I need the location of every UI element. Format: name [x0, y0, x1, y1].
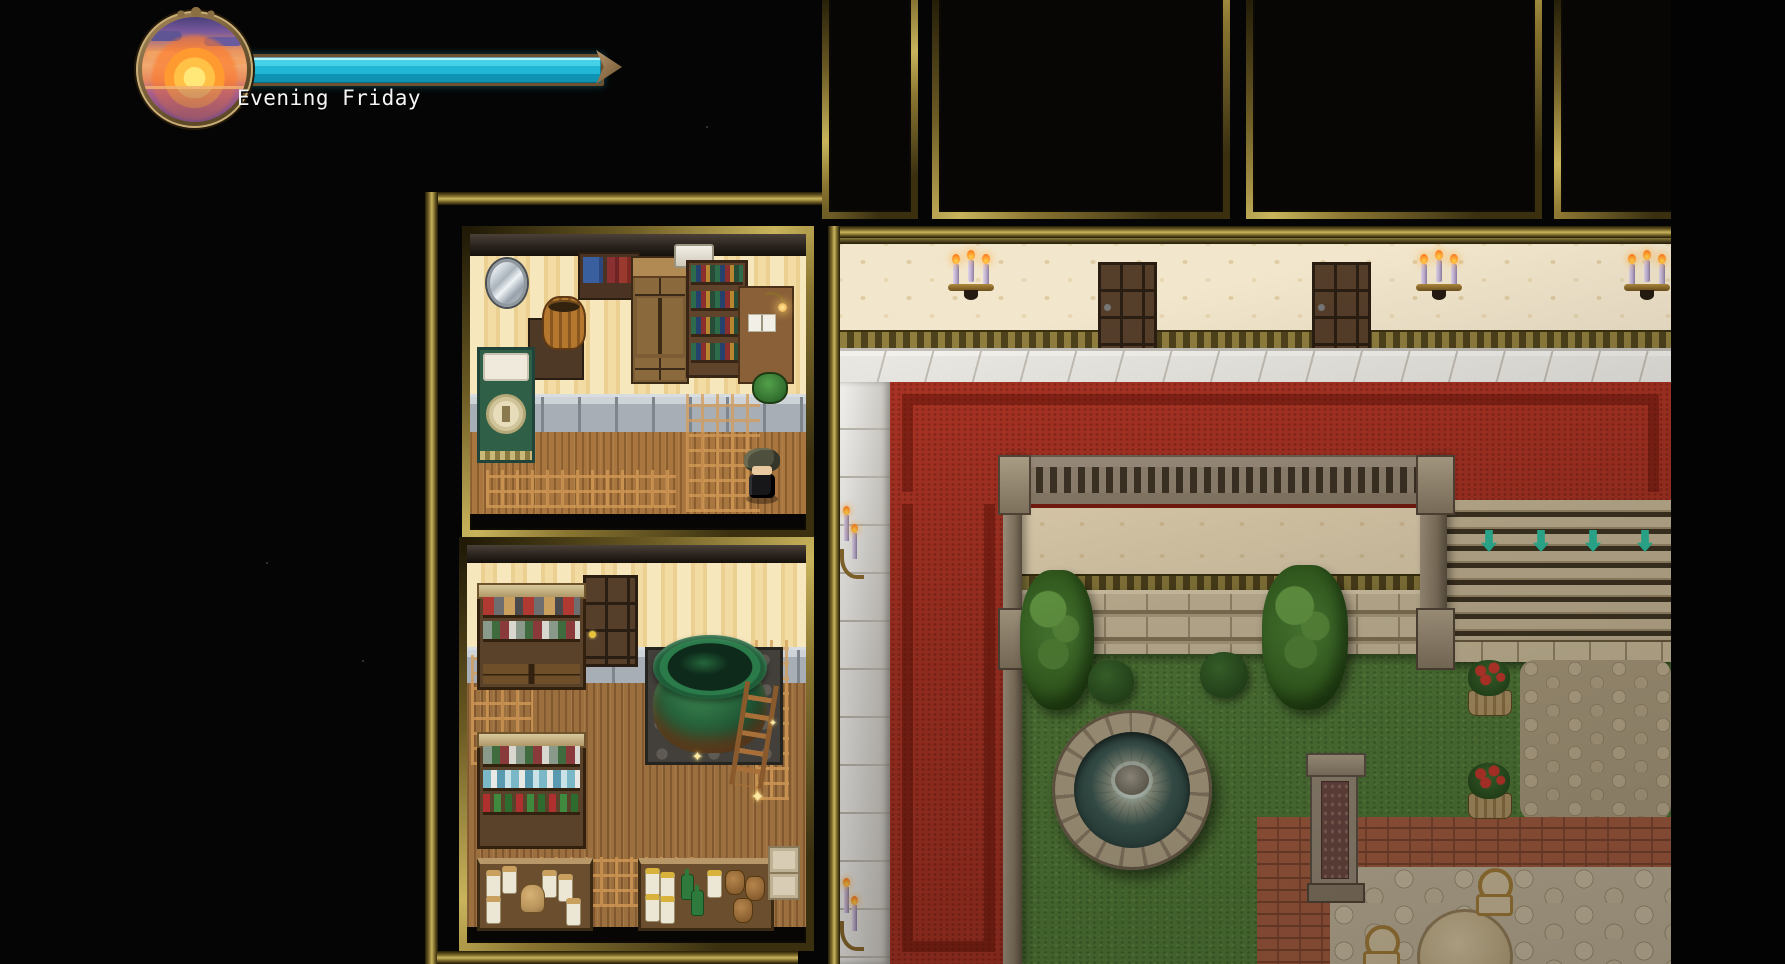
small-bush-1: [1088, 660, 1134, 704]
bedroom-rug-pattern: [486, 470, 676, 508]
left-column-wall: [1003, 455, 1022, 964]
sconce-drop: [1640, 290, 1654, 300]
candle: [1421, 264, 1427, 286]
character-body: [749, 474, 775, 498]
bed-trim: [480, 451, 532, 460]
door-ring-handle-icon: [1104, 304, 1111, 311]
courtyard-area: [840, 238, 1671, 964]
wall-candle-sconce-icon: [840, 505, 866, 589]
basket: [542, 296, 586, 350]
alchemy-wall-top: [467, 545, 806, 563]
courtyard-frame-top: [828, 226, 1671, 238]
crate: [768, 872, 800, 900]
crate: [768, 846, 800, 874]
wide-stairs[interactable]: [1447, 500, 1671, 640]
wardrobe-drawer: [635, 278, 685, 296]
star-speck: [266, 562, 268, 564]
alchemy-interior: ✦ ✦ ✦: [467, 545, 806, 943]
chair-seat: [1363, 951, 1400, 964]
hall-door-2[interactable]: [1312, 262, 1371, 354]
clock-frame-ornament-icon: [173, 4, 219, 24]
jar: [566, 898, 581, 926]
star-speck: [706, 126, 708, 128]
book-row: [691, 265, 743, 285]
shelf-items: [483, 746, 580, 767]
study-desk[interactable]: [738, 286, 794, 384]
candle: [968, 260, 974, 282]
upper-room-frame-3: [1246, 0, 1542, 219]
wall-mirror: [487, 259, 527, 307]
shelf-items: [483, 770, 580, 791]
wardrobe[interactable]: [631, 256, 689, 384]
book-row: [691, 343, 743, 363]
green-bottle: [691, 890, 704, 916]
hall-door-1[interactable]: [1098, 262, 1157, 354]
red-roses: [1468, 763, 1510, 799]
patio-chair-2: [1362, 925, 1396, 964]
lower-room-frame-edge: [437, 951, 798, 964]
flower-planter-2: [1468, 763, 1510, 819]
yellow-lid-jar: [707, 870, 722, 898]
wardrobe-base-drawers: [635, 358, 685, 380]
stone-fountain[interactable]: [1052, 710, 1212, 870]
small-bush-2: [1200, 652, 1248, 698]
potion-shelf[interactable]: [477, 737, 586, 849]
alchemy-door[interactable]: [583, 575, 638, 667]
candle: [1644, 260, 1650, 282]
candle: [953, 264, 959, 286]
cauldron-glow: [679, 651, 729, 675]
chair-seat: [1476, 894, 1513, 916]
candle: [1629, 264, 1635, 286]
jug: [725, 870, 745, 895]
sconce-bracket: [840, 921, 864, 951]
wall-candle-sconce-icon: [840, 877, 866, 961]
sparkle-icon: ✦: [751, 783, 764, 808]
door-handle-icon: [589, 631, 596, 638]
sparkle-icon: ✦: [769, 715, 777, 730]
alchemy-room: ✦ ✦ ✦: [459, 537, 814, 951]
jar: [486, 870, 501, 898]
red-roses: [1468, 660, 1510, 696]
sack: [520, 884, 545, 913]
garden-lower-wall: [1022, 504, 1420, 594]
building-frame-left-bar: [425, 192, 438, 964]
fountain-pedestal: [1115, 765, 1149, 795]
clock-face: [142, 17, 247, 122]
sunset-clock-icon: [136, 11, 253, 128]
jar: [486, 896, 501, 924]
door-ring-handle-icon: [1318, 304, 1325, 311]
jar-table: [477, 858, 593, 931]
jug: [745, 876, 765, 901]
shelf-drawers: [483, 664, 580, 684]
left-column-capital: [998, 455, 1031, 515]
bedroom-room: [462, 226, 814, 538]
shelf-books: [583, 257, 635, 283]
green-stool: [752, 372, 788, 404]
upper-room-frame-1: [822, 0, 918, 219]
reading-lamp: [765, 292, 786, 315]
candle: [1436, 260, 1442, 282]
sconce-drop: [964, 290, 978, 300]
jug: [733, 898, 753, 923]
courtyard-frame-left: [828, 226, 840, 964]
bed-pillow: [483, 353, 529, 381]
time-progress-bar: [226, 54, 604, 86]
tall-hedge-1: [1020, 570, 1094, 710]
character-face: [752, 466, 772, 475]
candelabra-sconce-icon: [1413, 248, 1465, 300]
yellow-lid-jar: [660, 896, 675, 924]
sconce-drop: [1432, 290, 1446, 300]
hall-marble-floor: [840, 348, 1671, 382]
sconce-bracket: [840, 549, 864, 579]
bed-with-emblem[interactable]: [477, 347, 535, 463]
book-row: [691, 317, 743, 337]
yellow-lid-jar: [645, 894, 660, 922]
open-book: [748, 314, 776, 332]
candelabra-sconce-icon: [945, 248, 997, 300]
bottle-shelf: [638, 858, 774, 931]
sparkle-icon: ✦: [692, 745, 703, 766]
candelabra-sconce-icon: [1621, 248, 1671, 300]
candle: [1451, 264, 1457, 286]
stairs-curb: [1447, 640, 1671, 662]
candle: [844, 515, 849, 541]
yellow-lid-jar: [645, 868, 660, 896]
monument-inlay: [1321, 781, 1349, 879]
candle: [844, 887, 849, 913]
shelf-items: [483, 597, 580, 618]
sea-horizon: [142, 86, 247, 122]
right-column-base: [1416, 608, 1455, 670]
bedroom-interior: [470, 234, 806, 530]
supply-shelf[interactable]: [477, 588, 586, 690]
candle: [983, 264, 989, 286]
flower-planter-1: [1468, 660, 1510, 716]
right-column-capital: [1416, 455, 1455, 515]
upper-room-frame-2: [932, 0, 1230, 219]
right-black-panel: [1671, 0, 1785, 964]
time-of-day-label: Evening Friday: [237, 86, 421, 110]
building-frame-top-bar: [425, 192, 830, 205]
balustrade-balusters: [1029, 467, 1420, 493]
wardrobe-doors: [637, 298, 683, 354]
tall-hedge-2: [1262, 565, 1348, 710]
bed-emblem: [486, 394, 526, 434]
shelf-items: [483, 794, 580, 815]
game-viewport[interactable]: ✦ ✦ ✦: [0, 0, 1785, 964]
jar: [502, 866, 517, 894]
candle: [1659, 264, 1665, 286]
shelf-items: [483, 621, 580, 642]
book-row: [691, 291, 743, 311]
star-speck: [362, 660, 364, 662]
player-character[interactable]: [744, 448, 780, 504]
cobblestone-patch: [1520, 660, 1671, 820]
stone-monument: [1310, 765, 1358, 895]
patio-chair-1: [1475, 868, 1509, 920]
